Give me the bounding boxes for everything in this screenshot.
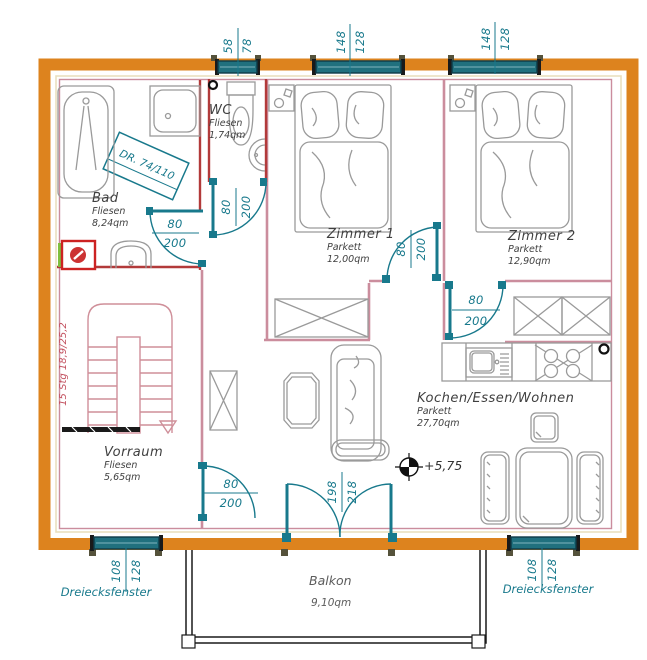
dim-door-z2-b: 200 <box>456 314 496 328</box>
room-area: 1,74qm <box>209 130 245 141</box>
shaft-vorraum-icon <box>210 371 237 430</box>
window-bottom-right <box>507 535 580 551</box>
dim-door-vorraum-b: 200 <box>211 496 251 510</box>
room-name: Zimmer 1 <box>327 227 395 242</box>
room-floor: Fliesen <box>92 206 128 217</box>
dim-window-z1-a: 148 <box>334 24 348 60</box>
stairs-label: 15 Stg 18,9/25,2 <box>58 293 72 435</box>
shower-icon <box>150 86 200 136</box>
outlet-symbols <box>209 81 609 354</box>
room-label-zimmer2: Zimmer 2 Parkett 12,90qm <box>508 229 576 267</box>
door-zimmer2 <box>445 281 506 340</box>
room-name: Kochen/Essen/Wohnen <box>417 391 574 406</box>
room-floor: Parkett <box>417 406 574 417</box>
elevation-marker-icon <box>395 453 423 481</box>
dining-bench-right-icon <box>577 452 603 524</box>
dim-door-wc-b: 200 <box>239 189 253 225</box>
room-label-zimmer1: Zimmer 1 Parkett 12,00qm <box>327 227 395 265</box>
dim-door-wc-a: 80 <box>219 189 233 225</box>
room-floor: Fliesen <box>209 118 245 129</box>
dim-window-z2-a: 148 <box>479 21 493 57</box>
dim-door-bad-a: 80 <box>155 217 195 231</box>
staircase <box>88 304 176 433</box>
elevation-label: +5,75 <box>424 458 462 473</box>
dining-bench-left-icon <box>481 452 509 524</box>
room-name: Vorraum <box>104 445 163 460</box>
triangle-window-label-right: Dreiecksfenster <box>492 582 604 596</box>
dim-window-bl-a: 108 <box>109 553 123 589</box>
dim-window-bl-b: 128 <box>129 553 143 589</box>
kitchen-counter-icon <box>442 343 611 381</box>
coffee-table-icon <box>284 373 319 428</box>
door-vorraum <box>198 462 258 521</box>
room-area: 5,65qm <box>104 472 163 483</box>
room-label-bad: Bad Fliesen 8,24qm <box>92 191 128 229</box>
cabinets-zimmer2-icon <box>514 297 610 335</box>
dim-door-z1-a: 80 <box>394 231 408 267</box>
corner-basin-icon <box>249 139 265 171</box>
room-label-vorraum: Vorraum Fliesen 5,65qm <box>104 445 163 483</box>
room-floor: Parkett <box>508 244 576 255</box>
room-label-wohnen: Kochen/Essen/Wohnen Parkett 27,70qm <box>417 391 574 429</box>
floor-plan: WC Fliesen 1,74qm Bad Fliesen 8,24qm Zim… <box>0 0 647 660</box>
room-name: Zimmer 2 <box>508 229 576 244</box>
dim-window-z1-b: 128 <box>353 24 367 60</box>
dim-window-wc-b: 78 <box>240 28 254 64</box>
window-zimmer1 <box>312 59 405 75</box>
room-label-balkon: Balkon <box>309 573 352 588</box>
dim-door-z2-a: 80 <box>456 293 496 307</box>
room-label-wc: WC Fliesen 1,74qm <box>209 103 245 141</box>
dining-table-icon <box>516 448 572 528</box>
room-area-balkon: 9,10qm <box>311 597 351 609</box>
room-area: 12,00qm <box>327 254 395 265</box>
dim-door-balkon-b: 218 <box>345 474 359 510</box>
dim-window-wc-a: 58 <box>221 28 235 64</box>
room-name: WC <box>209 103 245 118</box>
room-name: Bad <box>92 191 128 206</box>
room-floor: Parkett <box>327 242 395 253</box>
bathtub-icon <box>58 86 114 198</box>
dim-door-balkon-a: 198 <box>325 474 339 510</box>
room-floor: Fliesen <box>104 460 163 471</box>
room-area: 8,24qm <box>92 218 128 229</box>
room-area: 12,90qm <box>508 256 576 267</box>
wardrobe-zimmer1-icon <box>275 299 368 337</box>
door-wc <box>209 178 267 238</box>
washbasin-icon <box>111 241 151 268</box>
dim-door-vorraum-a: 80 <box>211 477 251 491</box>
dim-door-bad-b: 200 <box>155 236 195 250</box>
dim-window-z2-b: 128 <box>498 21 512 57</box>
room-area: 27,70qm <box>417 418 574 429</box>
dim-door-z1-b: 200 <box>414 231 428 267</box>
stair-cut-line <box>62 427 140 432</box>
washing-machine-icon <box>58 241 95 269</box>
bed-zimmer1-icon <box>269 85 391 232</box>
bed-zimmer2-icon <box>450 85 572 232</box>
triangle-window-label-left: Dreiecksfenster <box>50 585 162 599</box>
